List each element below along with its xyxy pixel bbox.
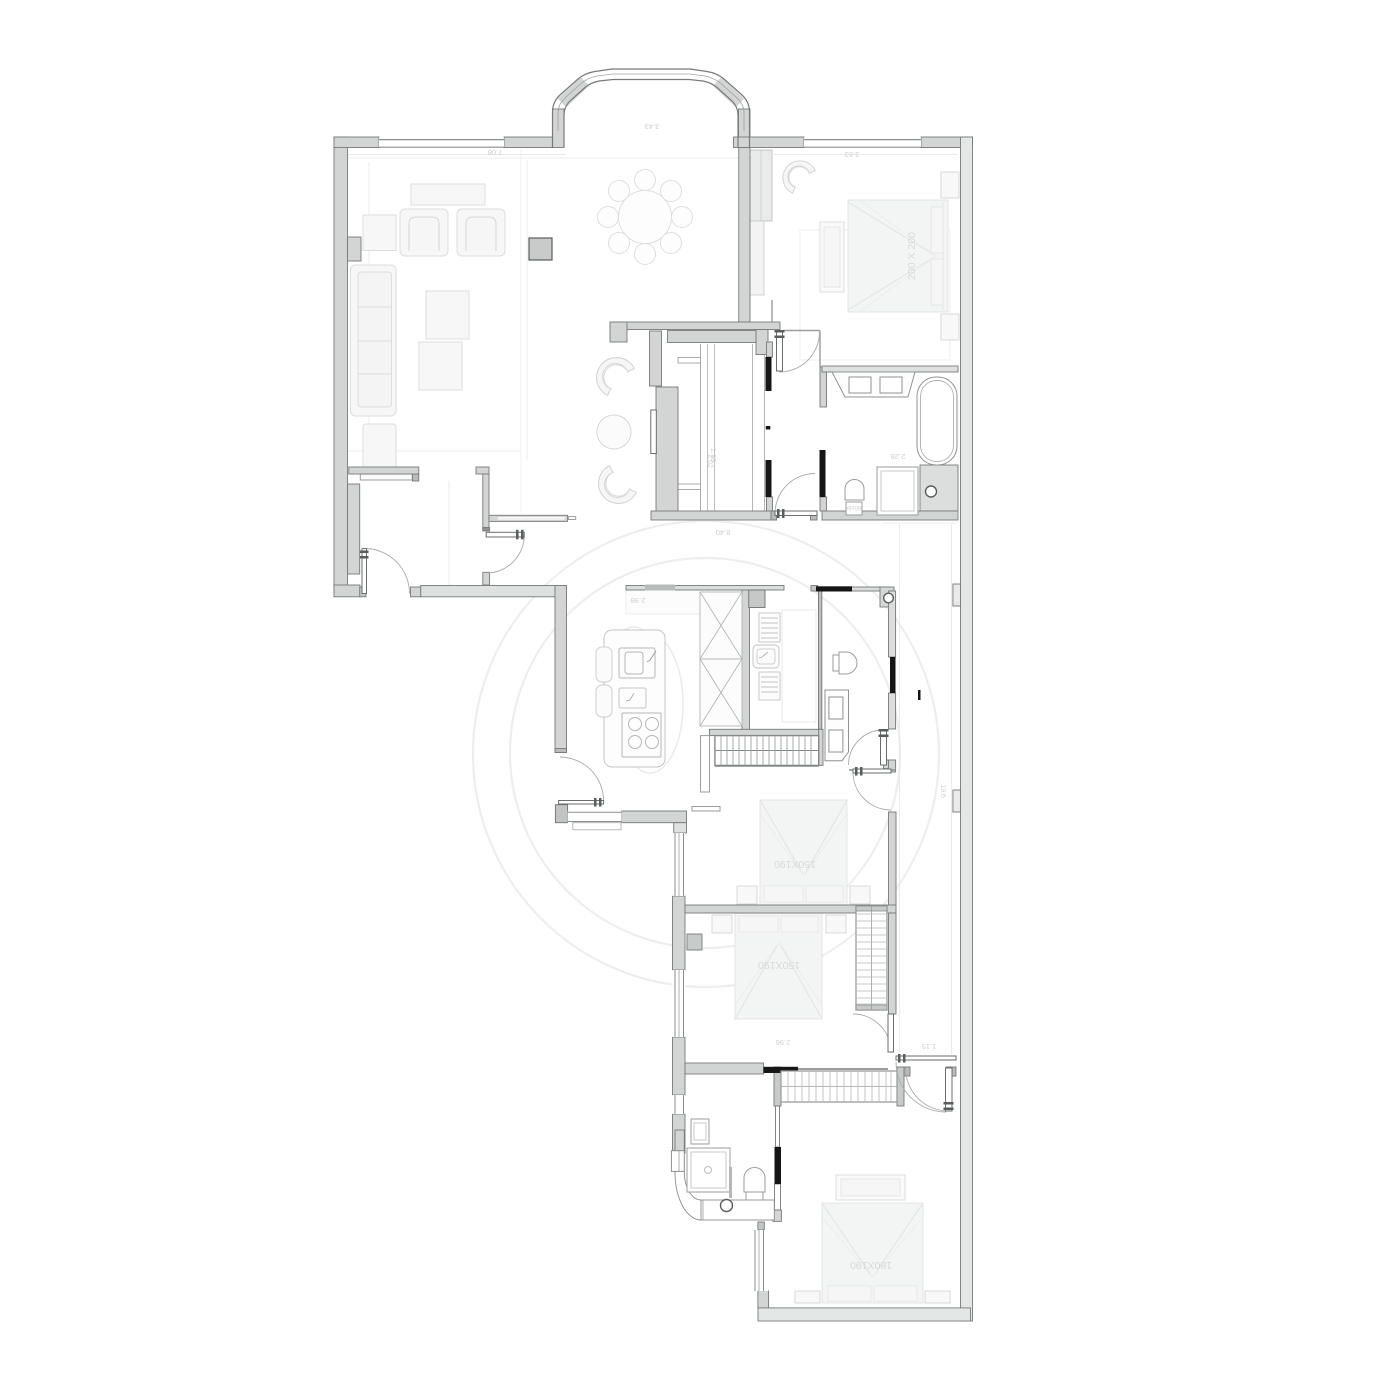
svg-text:60x60: 60x60 — [844, 504, 861, 510]
svg-text:2.98: 2.98 — [631, 596, 646, 605]
svg-text:1.15: 1.15 — [922, 1042, 937, 1051]
svg-text:150X190: 150X190 — [758, 959, 800, 971]
svg-text:200 X 200: 200 X 200 — [906, 232, 918, 280]
svg-text:150X190: 150X190 — [774, 858, 816, 870]
svg-text:2.28: 2.28 — [891, 452, 906, 461]
svg-text:3.63: 3.63 — [845, 150, 860, 159]
svg-text:2.02: 2.02 — [706, 454, 713, 468]
svg-text:3.43: 3.43 — [645, 122, 660, 131]
svg-text:180X190: 180X190 — [850, 1259, 892, 1271]
svg-text:2.96: 2.96 — [776, 1038, 791, 1047]
svg-text:7.08: 7.08 — [488, 148, 503, 157]
svg-text:19.6: 19.6 — [939, 784, 946, 798]
svg-text:8.40: 8.40 — [716, 528, 731, 537]
